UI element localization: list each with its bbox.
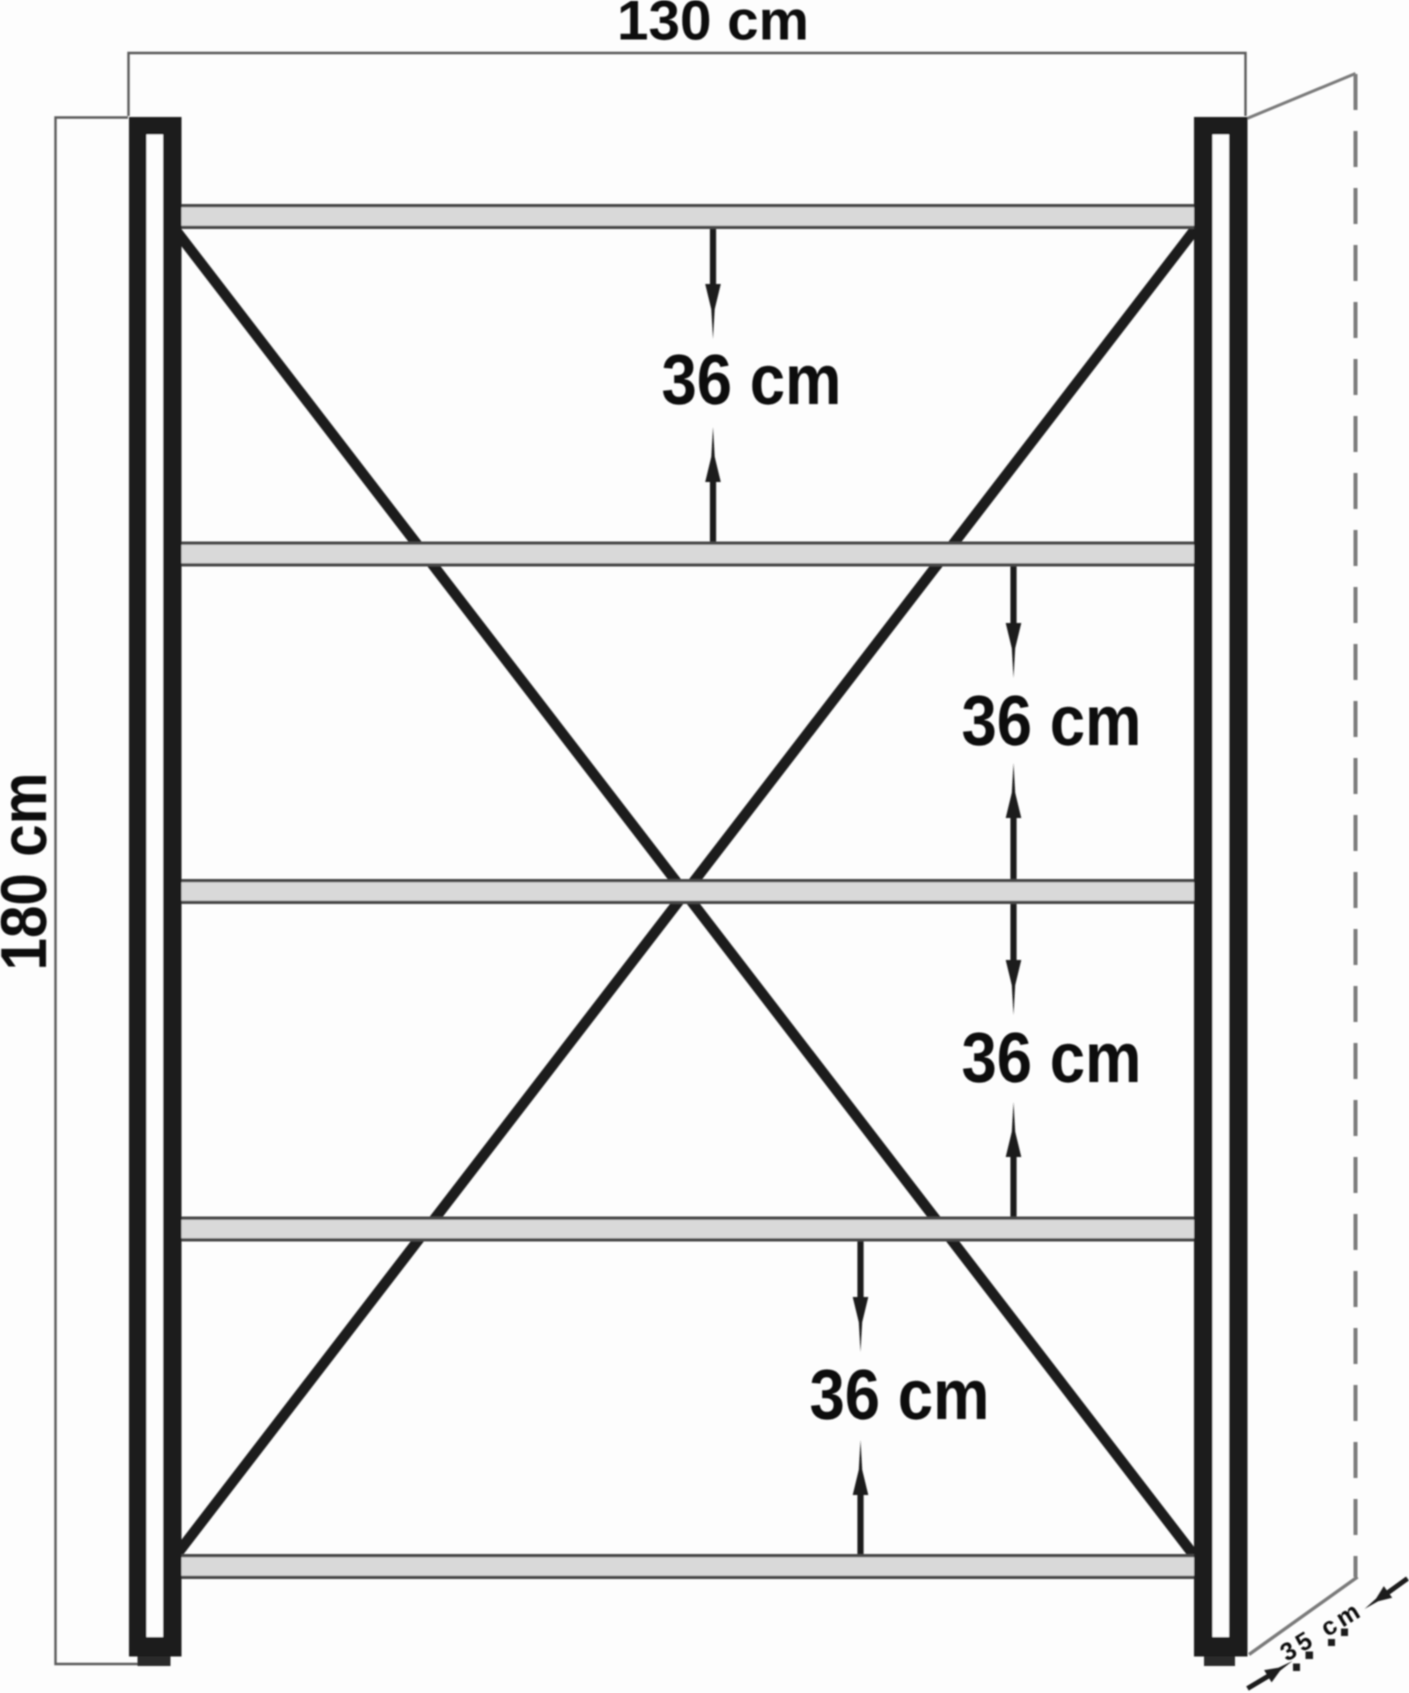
svg-text:36 cm: 36 cm	[662, 341, 842, 420]
svg-text:36 cm: 36 cm	[962, 682, 1142, 761]
svg-text:36 cm: 36 cm	[810, 1356, 990, 1435]
svg-text:36 cm: 36 cm	[962, 1019, 1142, 1098]
svg-text:180 cm: 180 cm	[0, 773, 60, 971]
svg-text:130 cm: 130 cm	[617, 0, 809, 52]
